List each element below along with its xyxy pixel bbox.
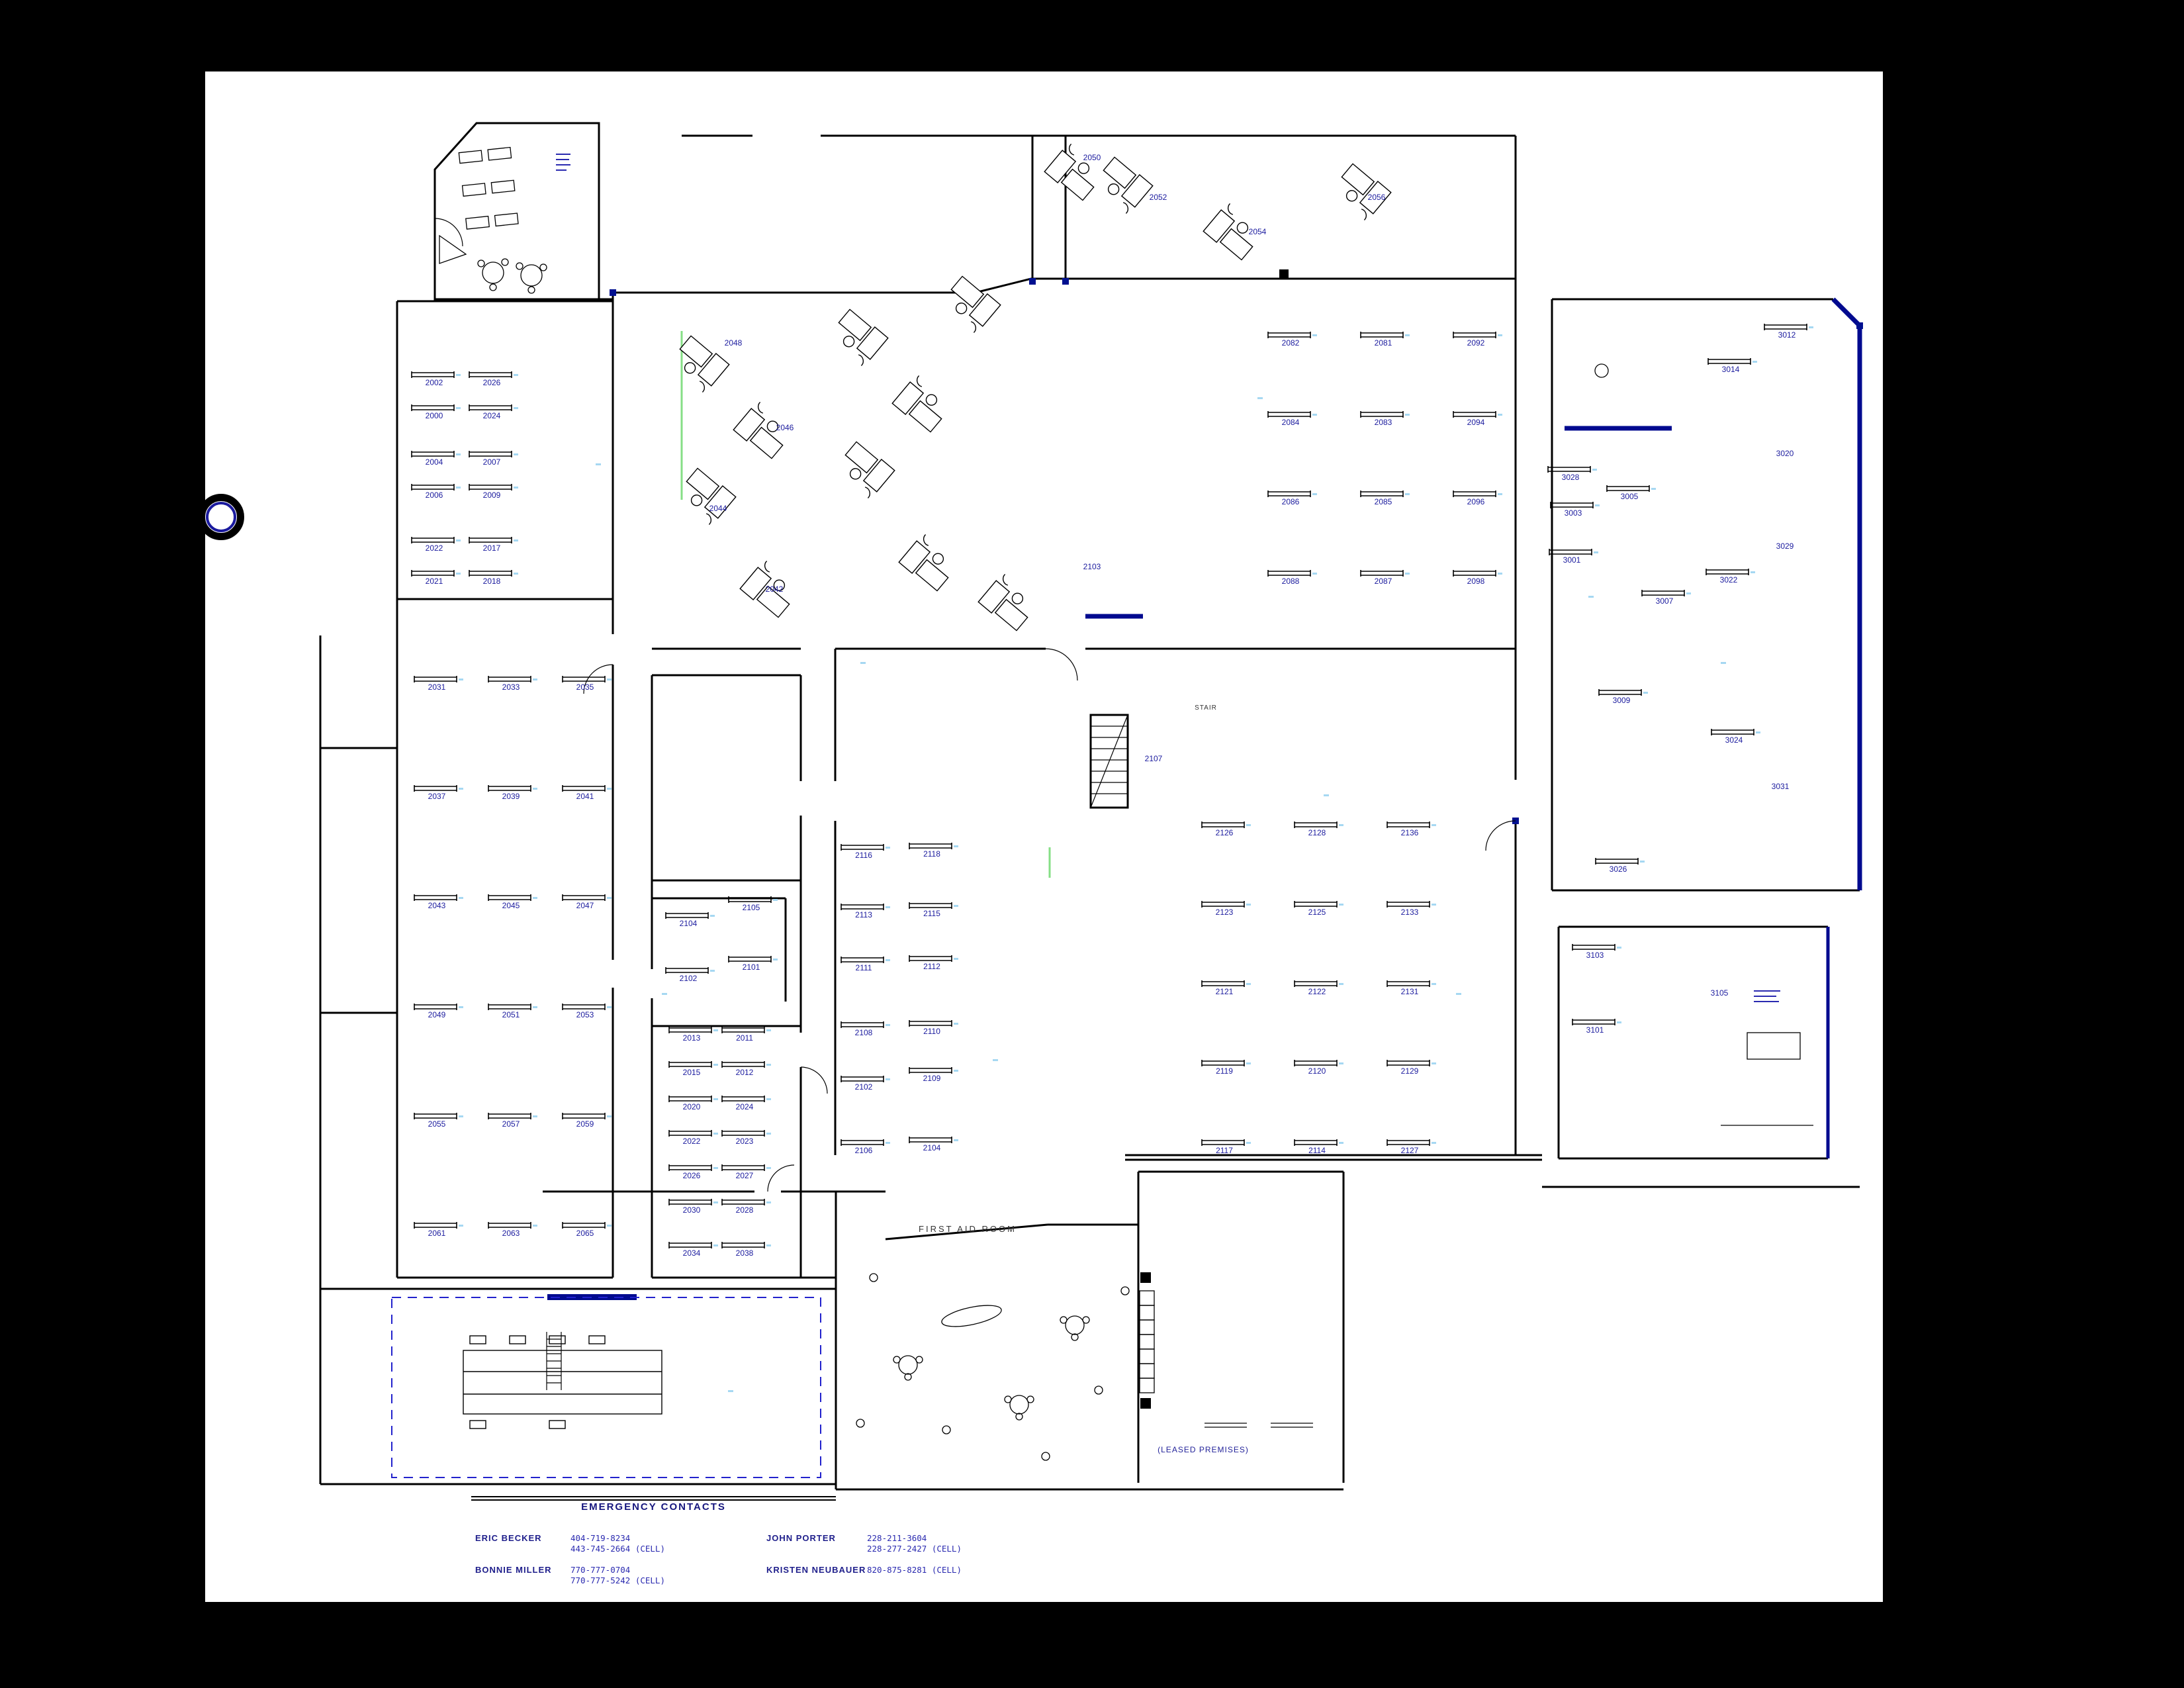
room-label: 2031 (428, 682, 446, 692)
room-label: 2084 (1282, 418, 1300, 427)
room-label: 2085 (1375, 497, 1392, 506)
room-label: 3001 (1563, 555, 1581, 565)
room-label: 2026 (483, 378, 501, 387)
room-label: 2023 (736, 1137, 754, 1146)
room-label: 2113 (855, 910, 872, 919)
storage-fittings (1140, 1291, 1313, 1427)
room-label: 2096 (1467, 497, 1485, 506)
room-label: 2061 (428, 1229, 446, 1238)
room-label: 3020 (1776, 449, 1794, 458)
door-swings (435, 218, 1516, 1192)
room-label: 2024 (483, 411, 501, 420)
room-label: 2116 (855, 851, 872, 860)
room-label: 2121 (1216, 987, 1234, 996)
room-label: 2043 (428, 901, 446, 910)
room-label: 3105 (1711, 988, 1729, 998)
room-label: 2017 (483, 543, 501, 553)
room-label: 3009 (1613, 696, 1631, 705)
contact-phone: 443-745-2664 (CELL) (570, 1544, 665, 1554)
room-label: 2007 (483, 457, 501, 467)
room-label: 2115 (923, 909, 940, 918)
room-label: 2120 (1308, 1066, 1326, 1076)
contact-phone: 228-277-2427 (CELL) (867, 1544, 962, 1554)
room-label: 3028 (1562, 473, 1580, 482)
room-label: 3014 (1722, 365, 1740, 374)
room-label: 2104 (923, 1143, 941, 1152)
room-label: 2059 (576, 1119, 594, 1129)
room-label: 2034 (683, 1248, 701, 1258)
room-label: 2107 (1145, 754, 1163, 763)
room-label: 3101 (1586, 1025, 1604, 1035)
room-label: 2102 (680, 974, 698, 983)
legend-rule-top (471, 1496, 836, 1497)
room-label: 3003 (1565, 508, 1582, 518)
room-label: 3007 (1656, 596, 1674, 606)
walls-navy (1085, 299, 1860, 1158)
room-label: 2110 (923, 1027, 940, 1036)
room-label: 2020 (683, 1102, 701, 1111)
contact-name: JOHN PORTER (766, 1533, 836, 1543)
room-label: 2088 (1282, 577, 1300, 586)
room-label: 2125 (1308, 908, 1326, 917)
room-label: 2045 (502, 901, 520, 910)
room-label: 2024 (736, 1102, 754, 1111)
room-label: 3031 (1772, 782, 1790, 791)
room-label: 2028 (736, 1205, 754, 1215)
room-label: 2054 (1249, 227, 1267, 236)
room-name-label: (LEASED PREMISES) (1158, 1445, 1249, 1454)
right-wing-note (1754, 990, 1780, 1002)
room-label: 2123 (1216, 908, 1234, 917)
room-label: 2013 (683, 1033, 701, 1043)
room-label: 2103 (1083, 562, 1101, 571)
contact-phone: 404-719-8234 (570, 1533, 630, 1543)
room-name-label: STAIR (1195, 704, 1217, 712)
room-label: 2052 (1150, 193, 1167, 202)
room-label: 2026 (683, 1171, 701, 1180)
wall-posts (610, 278, 1863, 824)
room-label: 2106 (855, 1146, 873, 1155)
room-label: 2094 (1467, 418, 1485, 427)
room-label: 2012 (736, 1068, 754, 1077)
room-label: 2108 (855, 1028, 873, 1037)
room-label: 2109 (923, 1074, 941, 1083)
room-label: 2042 (766, 585, 784, 594)
contact-phone: 228-211-3604 (867, 1533, 927, 1543)
room-label: 2127 (1401, 1146, 1419, 1155)
room-label: 2041 (576, 792, 594, 801)
room-number-labels: 2002202620002024200420072006200920222017… (426, 153, 1796, 1258)
contact-name: KRISTEN NEUBAUER (766, 1565, 866, 1575)
legend-title: EMERGENCY CONTACTS (471, 1501, 836, 1513)
room-label: 3024 (1725, 735, 1743, 745)
conference-suite (463, 1336, 662, 1429)
room-label: 2044 (709, 504, 727, 513)
room-label: 2105 (743, 903, 760, 912)
room-label: 2136 (1401, 828, 1419, 837)
scan-background: 2002202620002024200420072006200920222017… (0, 0, 2184, 1688)
room-label: 3005 (1621, 492, 1639, 501)
contact-name: BONNIE MILLER (475, 1565, 552, 1575)
room-label: 2057 (502, 1119, 520, 1129)
room-label: 2015 (683, 1068, 701, 1077)
room-label: 2049 (428, 1010, 446, 1019)
room-label: 2063 (502, 1229, 520, 1238)
floorplan-drawing: 2002202620002024200420072006200920222017… (205, 71, 1883, 1602)
room-label: 2033 (502, 682, 520, 692)
room-label: 2129 (1401, 1066, 1419, 1076)
room-label: 2048 (725, 338, 743, 348)
room-label: 2004 (426, 457, 443, 467)
room-label: 2022 (426, 543, 443, 553)
room-label: 2083 (1375, 418, 1392, 427)
room-label: 2126 (1216, 828, 1234, 837)
workstation-desks (412, 324, 1813, 1248)
room-label: 2050 (1083, 153, 1101, 162)
contact-phone: 770-777-0704 (570, 1565, 630, 1575)
room-label: 2035 (576, 682, 594, 692)
right-wing-fittings (1595, 364, 1813, 1125)
room-label: 2018 (483, 577, 501, 586)
cyan-accents (596, 397, 1726, 1392)
room-label: 2104 (680, 919, 698, 928)
reception-furniture (439, 148, 547, 293)
room-label: 2022 (683, 1137, 701, 1146)
room-label: 2098 (1467, 577, 1485, 586)
room-label: 2055 (428, 1119, 446, 1129)
room-label: 3012 (1778, 330, 1796, 340)
legend-rule-bottom (471, 1499, 836, 1501)
room-label: 2117 (1216, 1146, 1233, 1155)
room-label: 2039 (502, 792, 520, 801)
angled-workstations (668, 142, 1390, 633)
plan-note-block (556, 154, 570, 171)
room-label: 2027 (736, 1171, 754, 1180)
room-label: 2037 (428, 792, 446, 801)
room-label: 2006 (426, 491, 443, 500)
room-label: 2065 (576, 1229, 594, 1238)
room-label: 2053 (576, 1010, 594, 1019)
room-label: 3029 (1776, 541, 1794, 551)
room-label: 2038 (736, 1248, 754, 1258)
walls-main (320, 123, 1860, 1489)
room-label: 2118 (923, 849, 940, 859)
room-label: 2092 (1467, 338, 1485, 348)
room-label: 2119 (1216, 1066, 1233, 1076)
room-label: 2101 (743, 962, 760, 972)
room-name-label: FIRST AID ROOM (919, 1224, 1017, 1234)
room-label: 2081 (1375, 338, 1392, 348)
room-label: 2011 (736, 1033, 753, 1043)
room-label: 2046 (776, 423, 794, 432)
room-label: 2128 (1308, 828, 1326, 837)
room-label: 2111 (856, 963, 872, 972)
contact-phone: 770-777-5242 (CELL) (570, 1575, 665, 1585)
room-label: 2051 (502, 1010, 520, 1019)
room-label: 2131 (1401, 987, 1419, 996)
room-label: 2114 (1308, 1146, 1326, 1155)
leased-area-outline (392, 1297, 821, 1477)
contact-name: ERIC BECKER (475, 1533, 542, 1543)
room-label: 2009 (483, 491, 501, 500)
room-label: 2056 (1368, 193, 1386, 202)
room-label: 3026 (1610, 865, 1627, 874)
room-label: 2047 (576, 901, 594, 910)
room-label: 2133 (1401, 908, 1419, 917)
room-label: 2102 (855, 1082, 873, 1092)
floorplan-sheet: 2002202620002024200420072006200920222017… (205, 71, 1883, 1602)
room-label: 3103 (1586, 951, 1604, 960)
room-label: 2086 (1282, 497, 1300, 506)
room-label: 2021 (426, 577, 443, 586)
room-label: 2030 (683, 1205, 701, 1215)
column-post (1279, 269, 1289, 279)
room-label: 2000 (426, 411, 443, 420)
room-label: 2087 (1375, 577, 1392, 586)
room-label: 2082 (1282, 338, 1300, 348)
room-label: 2122 (1308, 987, 1326, 996)
room-label: 2002 (426, 378, 443, 387)
room-label: 3022 (1720, 575, 1738, 585)
room-name-labels: FIRST AID ROOM(LEASED PREMISES)STAIR (919, 704, 1249, 1454)
storage-columns (1140, 1272, 1151, 1409)
cafeteria-furniture (856, 1274, 1129, 1460)
contact-phone: 820-875-8281 (CELL) (867, 1565, 962, 1575)
room-label: 2112 (923, 962, 940, 971)
